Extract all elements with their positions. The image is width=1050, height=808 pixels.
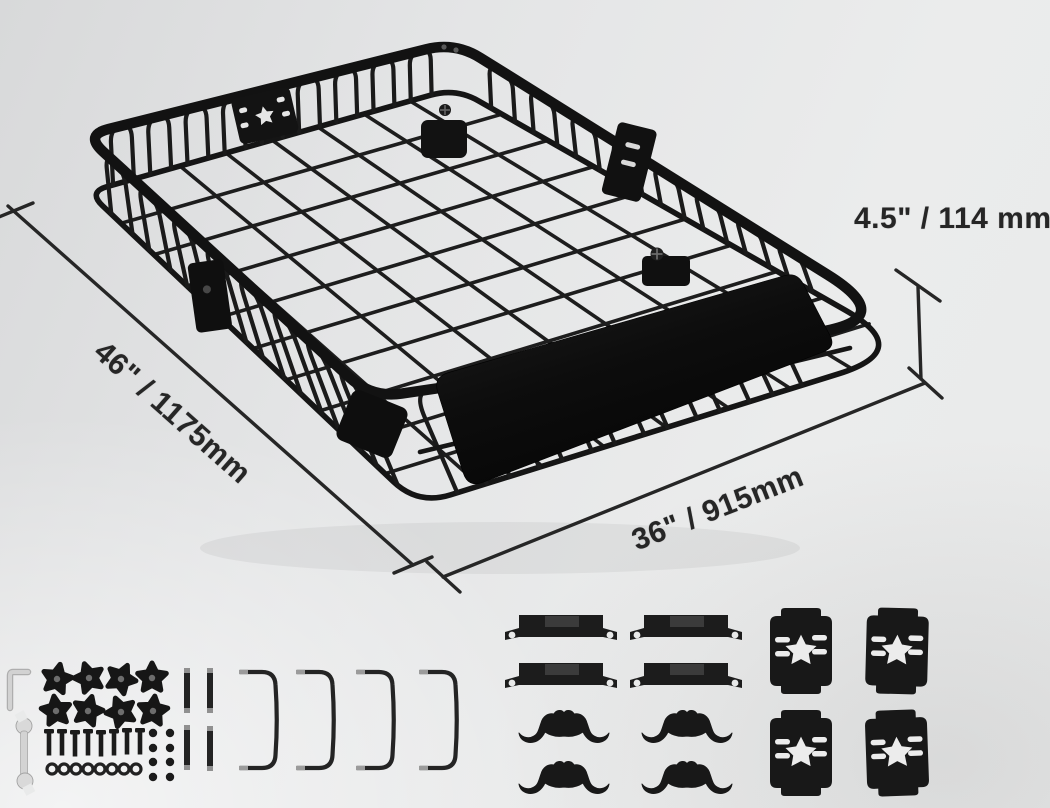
dimension-label-height: 4.5" / 114 mm — [854, 202, 1050, 236]
star-knobs — [40, 659, 169, 728]
product-dimension-photo: 46" / 1175mm 36" / 915mm 4.5" / 114 mm — [0, 0, 1050, 808]
hex-key-icon — [10, 672, 28, 708]
ribbed-clamps — [519, 710, 732, 793]
dimension-line-height — [918, 287, 921, 379]
u-brackets — [239, 672, 457, 768]
rim-bolt-head — [441, 44, 446, 49]
nuts — [149, 729, 174, 781]
strap-brackets — [505, 615, 742, 688]
washers — [47, 764, 141, 774]
star-mounting-plates — [770, 607, 929, 797]
fairing-clamp — [642, 248, 690, 287]
rim-bolt-head — [453, 47, 458, 52]
wind-fairing — [437, 275, 832, 484]
bolts — [44, 728, 145, 757]
wrench-icon — [15, 710, 36, 796]
threaded-rods — [187, 668, 210, 771]
